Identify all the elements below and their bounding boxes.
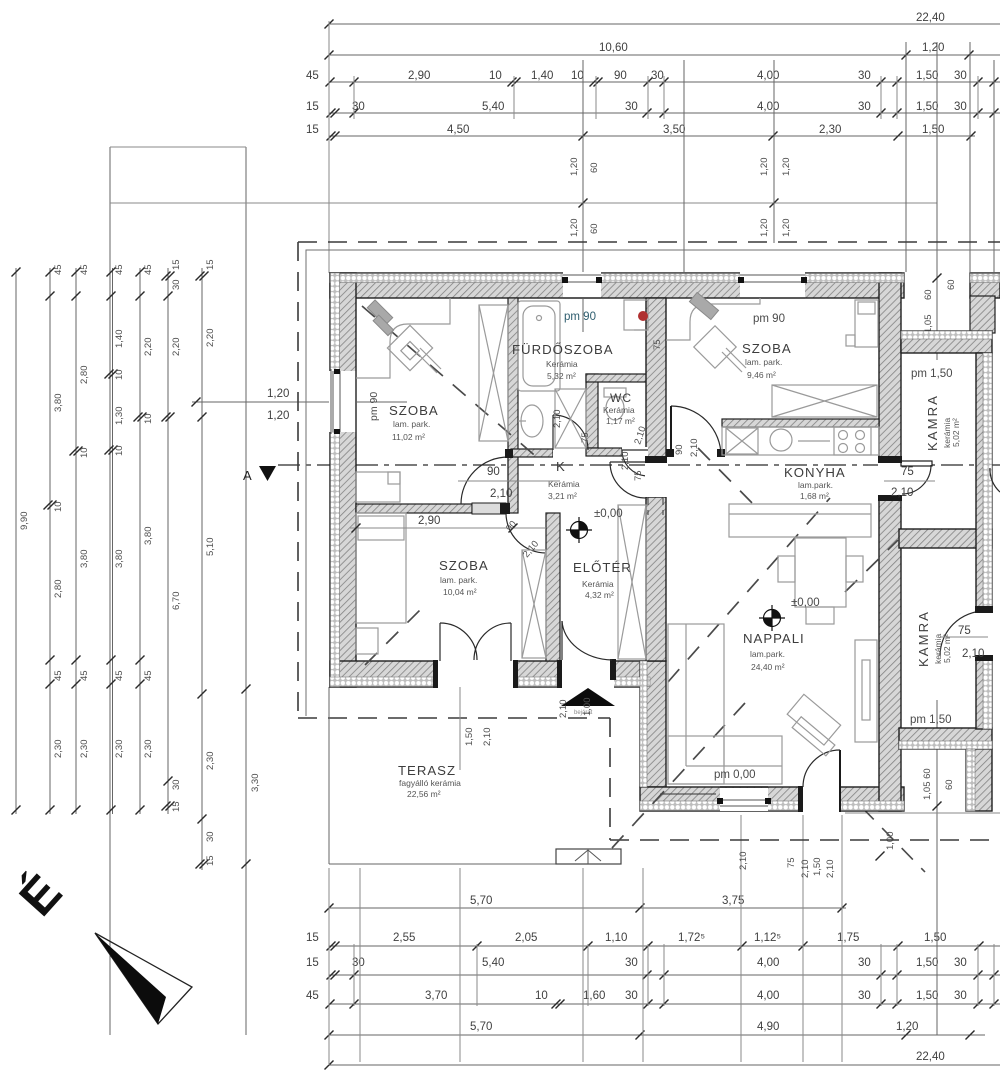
svg-text:2,10: 2,10 — [482, 728, 493, 747]
svg-text:10: 10 — [571, 70, 584, 82]
svg-text:10: 10 — [535, 990, 548, 1002]
svg-text:KAMRA: KAMRA — [925, 394, 940, 451]
svg-text:1,20: 1,20 — [759, 219, 770, 238]
svg-text:1,20: 1,20 — [267, 388, 289, 400]
svg-text:10: 10 — [143, 413, 154, 424]
svg-text:45: 45 — [306, 990, 319, 1002]
svg-text:5,02 m²: 5,02 m² — [942, 634, 952, 663]
svg-text:90: 90 — [674, 444, 685, 455]
svg-text:fagyálló kerámia: fagyálló kerámia — [399, 778, 461, 788]
svg-text:60: 60 — [944, 779, 955, 790]
svg-text:24,40 m²: 24,40 m² — [751, 662, 785, 672]
svg-text:10: 10 — [79, 447, 90, 458]
svg-text:TERASZ: TERASZ — [398, 763, 456, 778]
svg-text:1,10: 1,10 — [605, 932, 627, 944]
svg-text:1,00: 1,00 — [582, 698, 593, 717]
svg-text:1,20: 1,20 — [781, 219, 792, 238]
svg-text:2,30: 2,30 — [114, 740, 125, 759]
svg-text:60: 60 — [589, 223, 600, 234]
svg-text:45: 45 — [143, 670, 154, 681]
svg-text:2,30: 2,30 — [205, 752, 216, 771]
svg-text:22,40: 22,40 — [916, 1051, 945, 1063]
svg-text:2,10: 2,10 — [825, 860, 836, 879]
svg-text:4,00: 4,00 — [757, 990, 779, 1002]
svg-text:45: 45 — [143, 264, 154, 275]
svg-text:2,10: 2,10 — [800, 860, 811, 879]
svg-text:30: 30 — [625, 990, 638, 1002]
svg-text:3,80: 3,80 — [143, 527, 154, 546]
svg-text:15: 15 — [306, 101, 319, 113]
svg-text:45: 45 — [79, 264, 90, 275]
svg-text:pm 90: pm 90 — [564, 311, 596, 323]
svg-text:75: 75 — [786, 857, 797, 868]
svg-text:45: 45 — [79, 670, 90, 681]
svg-text:1,20: 1,20 — [569, 158, 580, 177]
svg-text:pm 1,50: pm 1,50 — [910, 714, 952, 726]
svg-text:10,04 m²: 10,04 m² — [443, 587, 477, 597]
svg-text:1,17 m²: 1,17 m² — [606, 416, 635, 426]
svg-text:±0,00: ±0,00 — [594, 508, 623, 520]
svg-text:10: 10 — [489, 70, 502, 82]
svg-text:1,60: 1,60 — [583, 990, 605, 1002]
svg-text:75: 75 — [901, 466, 914, 478]
svg-text:30: 30 — [171, 779, 182, 790]
svg-text:1,50: 1,50 — [812, 858, 823, 877]
svg-text:1,50: 1,50 — [464, 728, 475, 747]
svg-text:30: 30 — [651, 70, 664, 82]
svg-text:5,70: 5,70 — [470, 1021, 492, 1033]
svg-text:2,30: 2,30 — [79, 740, 90, 759]
svg-text:pm 0,00: pm 0,00 — [714, 769, 756, 781]
svg-text:90: 90 — [487, 466, 500, 478]
svg-text:30: 30 — [954, 990, 967, 1002]
svg-text:30: 30 — [858, 990, 871, 1002]
svg-text:30: 30 — [954, 957, 967, 969]
svg-text:3,70: 3,70 — [425, 990, 447, 1002]
svg-text:30: 30 — [625, 957, 638, 969]
svg-text:KONYHA: KONYHA — [784, 465, 846, 480]
svg-text:2,10: 2,10 — [552, 410, 563, 429]
svg-text:30: 30 — [205, 831, 216, 842]
svg-text:lam.park.: lam.park. — [798, 480, 833, 490]
svg-text:KAMRA: KAMRA — [916, 610, 931, 667]
svg-text:9,46 m²: 9,46 m² — [747, 370, 776, 380]
svg-text:1,20: 1,20 — [267, 410, 289, 422]
svg-text:4,50: 4,50 — [447, 124, 469, 136]
svg-text:2,10: 2,10 — [558, 700, 569, 719]
svg-text:A: A — [243, 468, 252, 483]
svg-text:±0,00: ±0,00 — [791, 597, 820, 609]
svg-text:1,05 60: 1,05 60 — [922, 768, 933, 800]
svg-text:2,80: 2,80 — [53, 580, 64, 599]
svg-text:30: 30 — [954, 70, 967, 82]
svg-text:pm 90: pm 90 — [368, 392, 380, 421]
svg-text:1,50: 1,50 — [916, 957, 938, 969]
svg-text:1,50: 1,50 — [922, 124, 944, 136]
svg-text:1,75: 1,75 — [837, 932, 859, 944]
svg-text:Kerámia: Kerámia — [582, 579, 614, 589]
svg-text:5,70: 5,70 — [470, 895, 492, 907]
svg-text:4,90: 4,90 — [757, 1021, 779, 1033]
svg-text:2,30: 2,30 — [819, 124, 841, 136]
svg-text:60: 60 — [923, 289, 934, 300]
svg-text:1,50: 1,50 — [924, 932, 946, 944]
svg-text:3,50: 3,50 — [663, 124, 685, 136]
svg-text:2,10: 2,10 — [620, 452, 631, 471]
svg-text:2,10: 2,10 — [738, 852, 749, 871]
svg-text:2,90: 2,90 — [418, 515, 440, 527]
svg-text:2,30: 2,30 — [143, 740, 154, 759]
svg-text:15: 15 — [205, 259, 216, 270]
svg-text:NAPPALI: NAPPALI — [743, 631, 805, 646]
svg-text:45: 45 — [53, 264, 64, 275]
svg-text:3,21 m²: 3,21 m² — [548, 491, 577, 501]
svg-text:4,00: 4,00 — [757, 957, 779, 969]
svg-text:2,30: 2,30 — [53, 740, 64, 759]
svg-text:lam. park.: lam. park. — [745, 357, 782, 367]
svg-text:4,00: 4,00 — [757, 70, 779, 82]
svg-text:1,50: 1,50 — [916, 101, 938, 113]
svg-text:1,20: 1,20 — [759, 158, 770, 177]
svg-text:3,80: 3,80 — [53, 394, 64, 413]
svg-text:5,32 m²: 5,32 m² — [547, 371, 576, 381]
svg-text:2,05: 2,05 — [515, 932, 537, 944]
svg-text:1,05: 1,05 — [923, 315, 934, 334]
svg-text:15: 15 — [306, 932, 319, 944]
svg-text:30: 30 — [625, 101, 638, 113]
svg-text:75: 75 — [633, 470, 644, 481]
svg-text:45: 45 — [53, 670, 64, 681]
svg-text:1,20: 1,20 — [896, 1021, 918, 1033]
svg-text:15: 15 — [306, 957, 319, 969]
svg-text:90: 90 — [614, 70, 627, 82]
svg-text:2,10: 2,10 — [689, 439, 700, 458]
svg-text:75: 75 — [652, 339, 663, 350]
svg-text:75: 75 — [958, 625, 971, 637]
svg-text:2,55: 2,55 — [393, 932, 415, 944]
svg-text:11,02 m²: 11,02 m² — [392, 432, 425, 442]
svg-text:1,40: 1,40 — [531, 70, 553, 82]
svg-text:60: 60 — [589, 162, 600, 173]
svg-text:30: 30 — [171, 279, 182, 290]
svg-text:30: 30 — [858, 101, 871, 113]
svg-text:15: 15 — [205, 855, 216, 866]
svg-text:4,00: 4,00 — [757, 101, 779, 113]
svg-text:FÜRDŐSZOBA: FÜRDŐSZOBA — [512, 342, 614, 357]
svg-text:30: 30 — [858, 957, 871, 969]
svg-text:ELŐTÉR: ELŐTÉR — [573, 560, 632, 575]
svg-text:22,56 m²: 22,56 m² — [407, 789, 441, 799]
svg-text:10,60: 10,60 — [599, 42, 628, 54]
svg-text:45: 45 — [114, 264, 125, 275]
svg-text:75: 75 — [580, 432, 591, 443]
svg-text:WC: WC — [610, 391, 632, 405]
svg-text:6,70: 6,70 — [171, 592, 182, 611]
svg-text:5,40: 5,40 — [482, 957, 504, 969]
svg-text:10: 10 — [114, 445, 125, 456]
svg-text:22,40: 22,40 — [916, 12, 945, 24]
svg-text:2,90: 2,90 — [408, 70, 430, 82]
svg-text:2,20: 2,20 — [143, 338, 154, 357]
svg-text:45: 45 — [306, 70, 319, 82]
svg-text:1,20: 1,20 — [781, 158, 792, 177]
svg-text:lam. park.: lam. park. — [440, 575, 477, 585]
svg-text:10: 10 — [53, 501, 64, 512]
svg-text:2,20: 2,20 — [171, 338, 182, 357]
svg-text:SZOBA: SZOBA — [439, 558, 489, 573]
svg-text:4,32 m²: 4,32 m² — [585, 590, 614, 600]
svg-text:5,02 m²: 5,02 m² — [951, 418, 961, 447]
svg-text:2,20: 2,20 — [205, 329, 216, 348]
svg-text:15: 15 — [171, 801, 182, 812]
svg-text:lam.park.: lam.park. — [750, 649, 785, 659]
svg-text:2,10: 2,10 — [962, 648, 984, 660]
svg-text:SZOBA: SZOBA — [742, 341, 792, 356]
svg-text:SZOBA: SZOBA — [389, 403, 439, 418]
svg-text:2,10: 2,10 — [490, 488, 512, 500]
svg-text:1,50: 1,50 — [916, 70, 938, 82]
svg-text:Kerámia: Kerámia — [546, 359, 578, 369]
svg-text:5,10: 5,10 — [205, 538, 216, 557]
svg-text:2,10: 2,10 — [891, 487, 913, 499]
svg-text:30: 30 — [858, 70, 871, 82]
svg-text:2,80: 2,80 — [79, 366, 90, 385]
svg-text:45: 45 — [114, 670, 125, 681]
svg-text:1,30: 1,30 — [114, 407, 125, 426]
svg-text:1,68 m²: 1,68 m² — [800, 491, 829, 501]
svg-text:30: 30 — [954, 101, 967, 113]
svg-text:1,20: 1,20 — [922, 42, 944, 54]
svg-text:1,20: 1,20 — [569, 219, 580, 238]
svg-text:3,80: 3,80 — [114, 550, 125, 569]
svg-text:pm 1,50: pm 1,50 — [911, 368, 953, 380]
svg-text:5,40: 5,40 — [482, 101, 504, 113]
svg-text:1,50: 1,50 — [916, 990, 938, 1002]
svg-text:3,80: 3,80 — [79, 550, 90, 569]
svg-text:15: 15 — [171, 259, 182, 270]
svg-text:Kerámia: Kerámia — [603, 405, 635, 415]
svg-text:3,30: 3,30 — [250, 774, 261, 793]
svg-text:1,12⁵: 1,12⁵ — [754, 932, 781, 944]
svg-text:10: 10 — [114, 369, 125, 380]
svg-text:1,72⁵: 1,72⁵ — [678, 932, 705, 944]
svg-text:9,90: 9,90 — [19, 512, 30, 531]
svg-text:K: K — [556, 459, 566, 474]
svg-text:pm 90: pm 90 — [753, 313, 785, 325]
svg-text:lam. park.: lam. park. — [393, 419, 430, 429]
svg-text:15: 15 — [306, 124, 319, 136]
svg-text:60: 60 — [946, 279, 957, 290]
svg-text:1,40: 1,40 — [114, 330, 125, 349]
